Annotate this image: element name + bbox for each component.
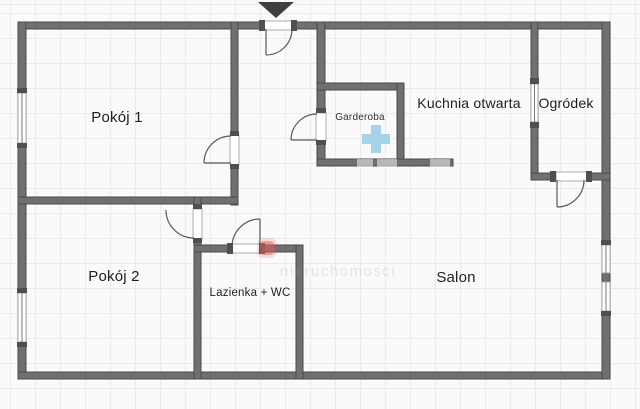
room-label-salon: Salon (406, 269, 506, 286)
door-opening-ogrodek (556, 172, 587, 181)
medical-plus-icon (362, 125, 390, 153)
wall-right (602, 22, 610, 379)
wall-pokoj1-right (231, 22, 238, 205)
door-arc-pokoj2 (166, 210, 194, 238)
room-label-lazienka: Lazienka + WC (195, 287, 305, 299)
room-label-ogrodek: Ogródek (516, 95, 616, 111)
door-opening-entrance (264, 21, 292, 30)
wall-garderoba-right (397, 83, 404, 166)
room-label-pokoj-1: Pokój 1 (67, 109, 167, 126)
floor-plan-drawing (0, 0, 640, 409)
wall-garderoba-top (317, 83, 404, 90)
entrance-arrow-icon (258, 2, 294, 18)
wall-lazienka-right (296, 245, 303, 379)
door-arc-entrance (266, 29, 292, 55)
room-label-kuchnia: Kuchnia otwarta (404, 95, 534, 111)
door-opening-pokoj2 (193, 209, 202, 239)
watermark-red-square (257, 238, 277, 258)
room-label-garderoba: Garderoba (310, 112, 410, 123)
wall-top (18, 22, 610, 29)
walls (18, 22, 610, 379)
door-arc-lazienka (232, 219, 260, 247)
door-arc-pokoj1 (204, 136, 231, 163)
door-arc-ogrodek (557, 180, 584, 207)
room-label-pokoj-2: Pokój 2 (64, 268, 164, 285)
wall-bottom (18, 372, 610, 379)
door-opening-lazienka (232, 244, 260, 253)
wall-pokoj1-bottom (18, 197, 238, 204)
floor-plan: Pokój 1 Pokój 2 Garderoba Kuchnia otwart… (0, 0, 640, 409)
door-opening-pokoj1 (230, 135, 239, 165)
